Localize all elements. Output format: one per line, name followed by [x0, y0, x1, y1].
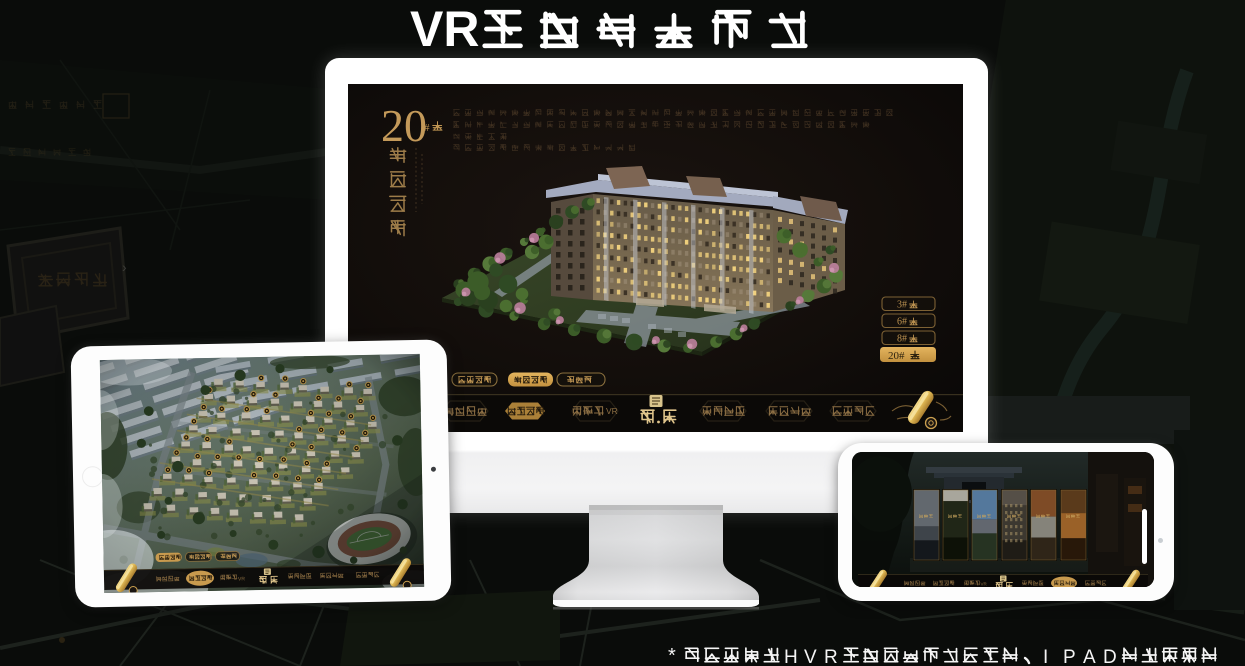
- svg-text:*: *: [668, 645, 676, 666]
- svg-text:VR: VR: [238, 576, 245, 582]
- svg-text:20#: 20#: [888, 350, 905, 362]
- svg-text:#: #: [424, 122, 430, 134]
- svg-text:›: ›: [122, 259, 127, 275]
- svg-text:6#: 6#: [897, 317, 907, 328]
- svg-text:8#: 8#: [897, 334, 907, 345]
- svg-text:VR: VR: [606, 406, 618, 416]
- svg-text:20: 20: [381, 100, 427, 151]
- svg-text:3#: 3#: [897, 300, 907, 311]
- svg-text:VR: VR: [981, 582, 988, 587]
- svg-text:V: V: [804, 647, 817, 666]
- svg-text:R: R: [824, 647, 838, 666]
- svg-text:D: D: [1103, 647, 1117, 666]
- svg-text:VR: VR: [410, 1, 479, 57]
- svg-text:H: H: [784, 647, 798, 666]
- svg-text:A: A: [1083, 647, 1096, 666]
- svg-text:I: I: [1043, 647, 1048, 666]
- svg-text:P: P: [1063, 647, 1076, 666]
